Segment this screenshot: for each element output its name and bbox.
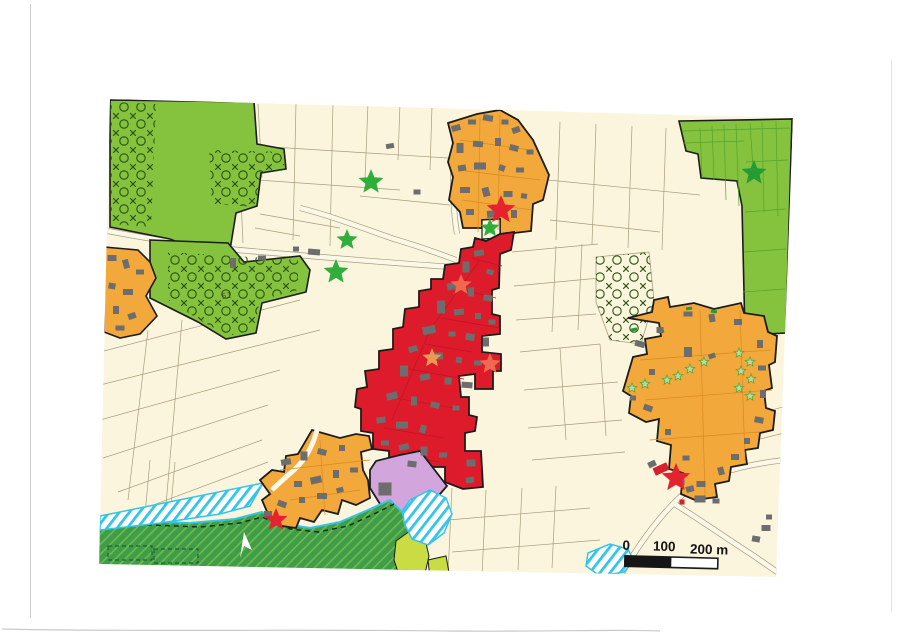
map-scan: 51 0 100 200 m: [0, 0, 900, 634]
building: [475, 313, 481, 319]
scan-line-bottom: [2, 629, 660, 631]
scale-tick-100: 100: [653, 539, 676, 555]
building: [495, 138, 501, 146]
building: [293, 247, 299, 252]
building: [760, 390, 766, 398]
building: [489, 320, 496, 325]
scanned-zoning-map-page: 51 0 100 200 m: [0, 0, 900, 634]
building: [116, 326, 125, 331]
building: [630, 396, 636, 401]
building: [376, 416, 386, 423]
building: [504, 191, 513, 197]
building: [521, 193, 528, 199]
parcel-number-label: 51: [221, 291, 232, 301]
building: [684, 347, 692, 357]
building: [454, 308, 465, 315]
building: [400, 366, 408, 377]
building: [657, 327, 664, 333]
building: [456, 357, 463, 364]
building: [414, 190, 421, 195]
building: [527, 150, 534, 155]
building: [461, 382, 472, 389]
building: [766, 515, 772, 520]
building: [301, 452, 308, 461]
building: [317, 493, 327, 499]
building: [308, 248, 320, 255]
building: [744, 438, 750, 444]
map-body: 51: [99, 99, 794, 580]
building: [683, 456, 690, 461]
building: [108, 282, 116, 289]
building: [136, 270, 144, 275]
building: [468, 288, 474, 297]
building: [108, 255, 117, 261]
building: [695, 496, 706, 503]
building: [684, 312, 693, 317]
building: [734, 319, 742, 325]
zone-chartreuse-patch: [428, 556, 450, 578]
building: [339, 445, 345, 451]
building: [258, 256, 266, 261]
building: [511, 210, 517, 218]
orchard-pattern-overlay: [110, 102, 156, 227]
building: [407, 461, 417, 468]
building: [474, 163, 486, 170]
building: [516, 168, 524, 173]
building: [473, 141, 483, 148]
building: [113, 306, 119, 314]
building: [483, 294, 493, 301]
building: [437, 301, 445, 314]
building: [381, 441, 389, 446]
building: [466, 209, 474, 215]
building: [350, 468, 358, 473]
building: [294, 481, 302, 487]
building: [299, 497, 305, 503]
building: [460, 187, 470, 193]
building: [463, 262, 470, 273]
building: [467, 460, 476, 467]
building: [453, 406, 460, 411]
building: [502, 120, 509, 125]
building: [731, 454, 739, 460]
scale-tick-0: 0: [622, 538, 630, 553]
building: [483, 338, 489, 347]
building: [713, 499, 720, 504]
building: [379, 483, 392, 496]
scale-bar-filled-half: [625, 556, 672, 568]
building: [468, 120, 476, 125]
building: [758, 366, 766, 371]
building: [445, 378, 452, 385]
building: [457, 143, 464, 153]
building: [333, 470, 339, 478]
building: [411, 397, 417, 406]
building: [439, 453, 447, 458]
building: [649, 369, 655, 375]
building: [680, 500, 685, 505]
building: [421, 447, 428, 456]
building: [449, 332, 456, 337]
building: [396, 422, 408, 429]
building: [123, 289, 133, 295]
building: [665, 429, 671, 435]
scale-tick-200: 200 m: [690, 542, 729, 558]
building: [697, 481, 706, 487]
building: [757, 340, 763, 348]
building: [762, 525, 771, 531]
building: [230, 258, 236, 268]
